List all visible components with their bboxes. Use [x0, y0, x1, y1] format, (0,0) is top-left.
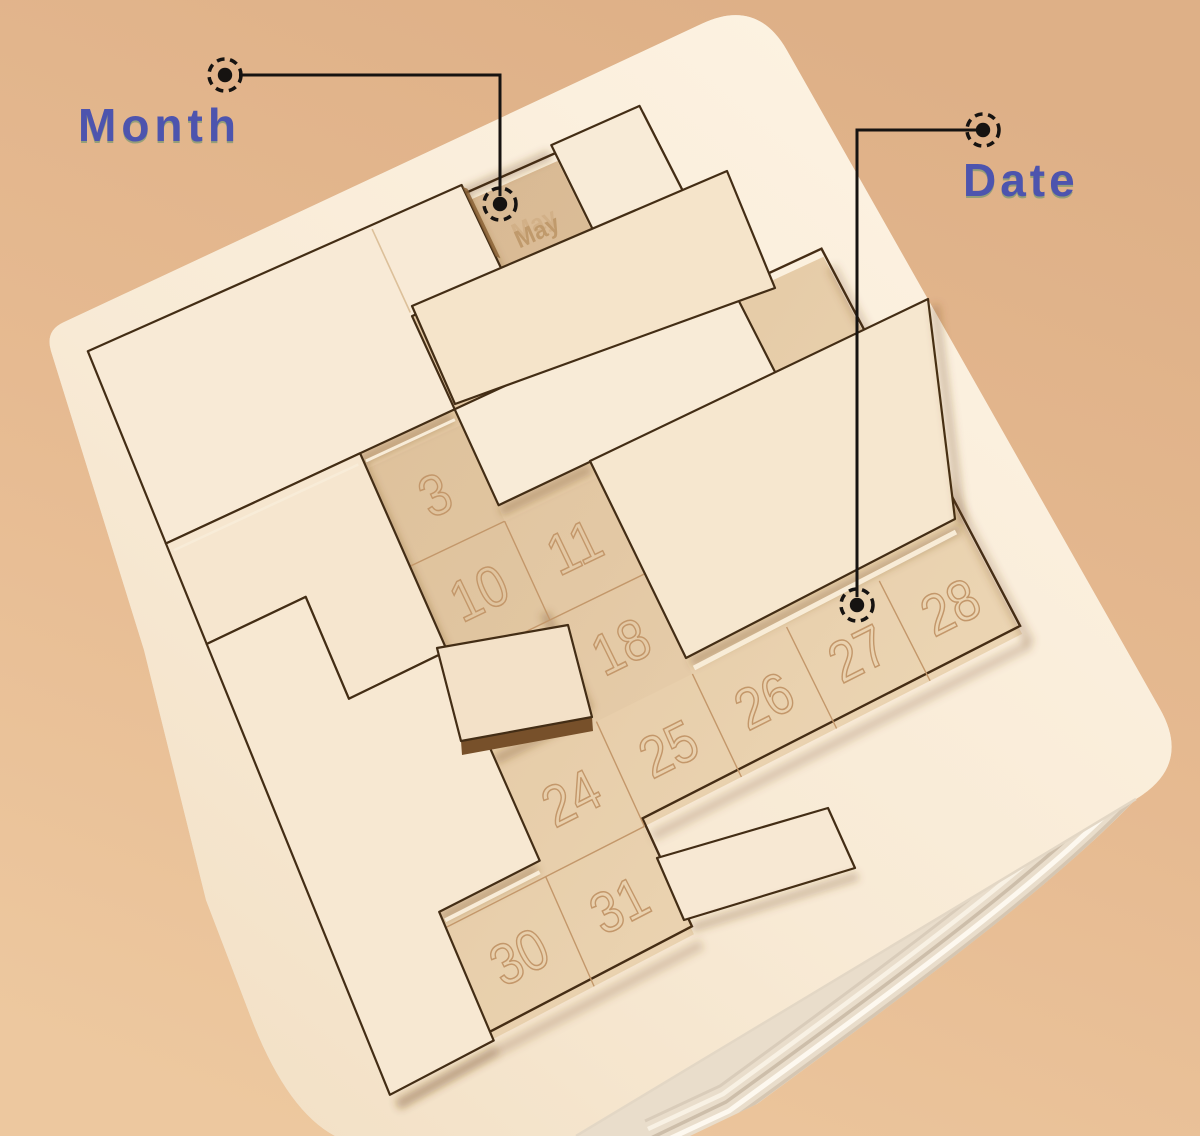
svg-text:Month: Month: [78, 99, 241, 151]
svg-text:Date: Date: [963, 154, 1079, 206]
